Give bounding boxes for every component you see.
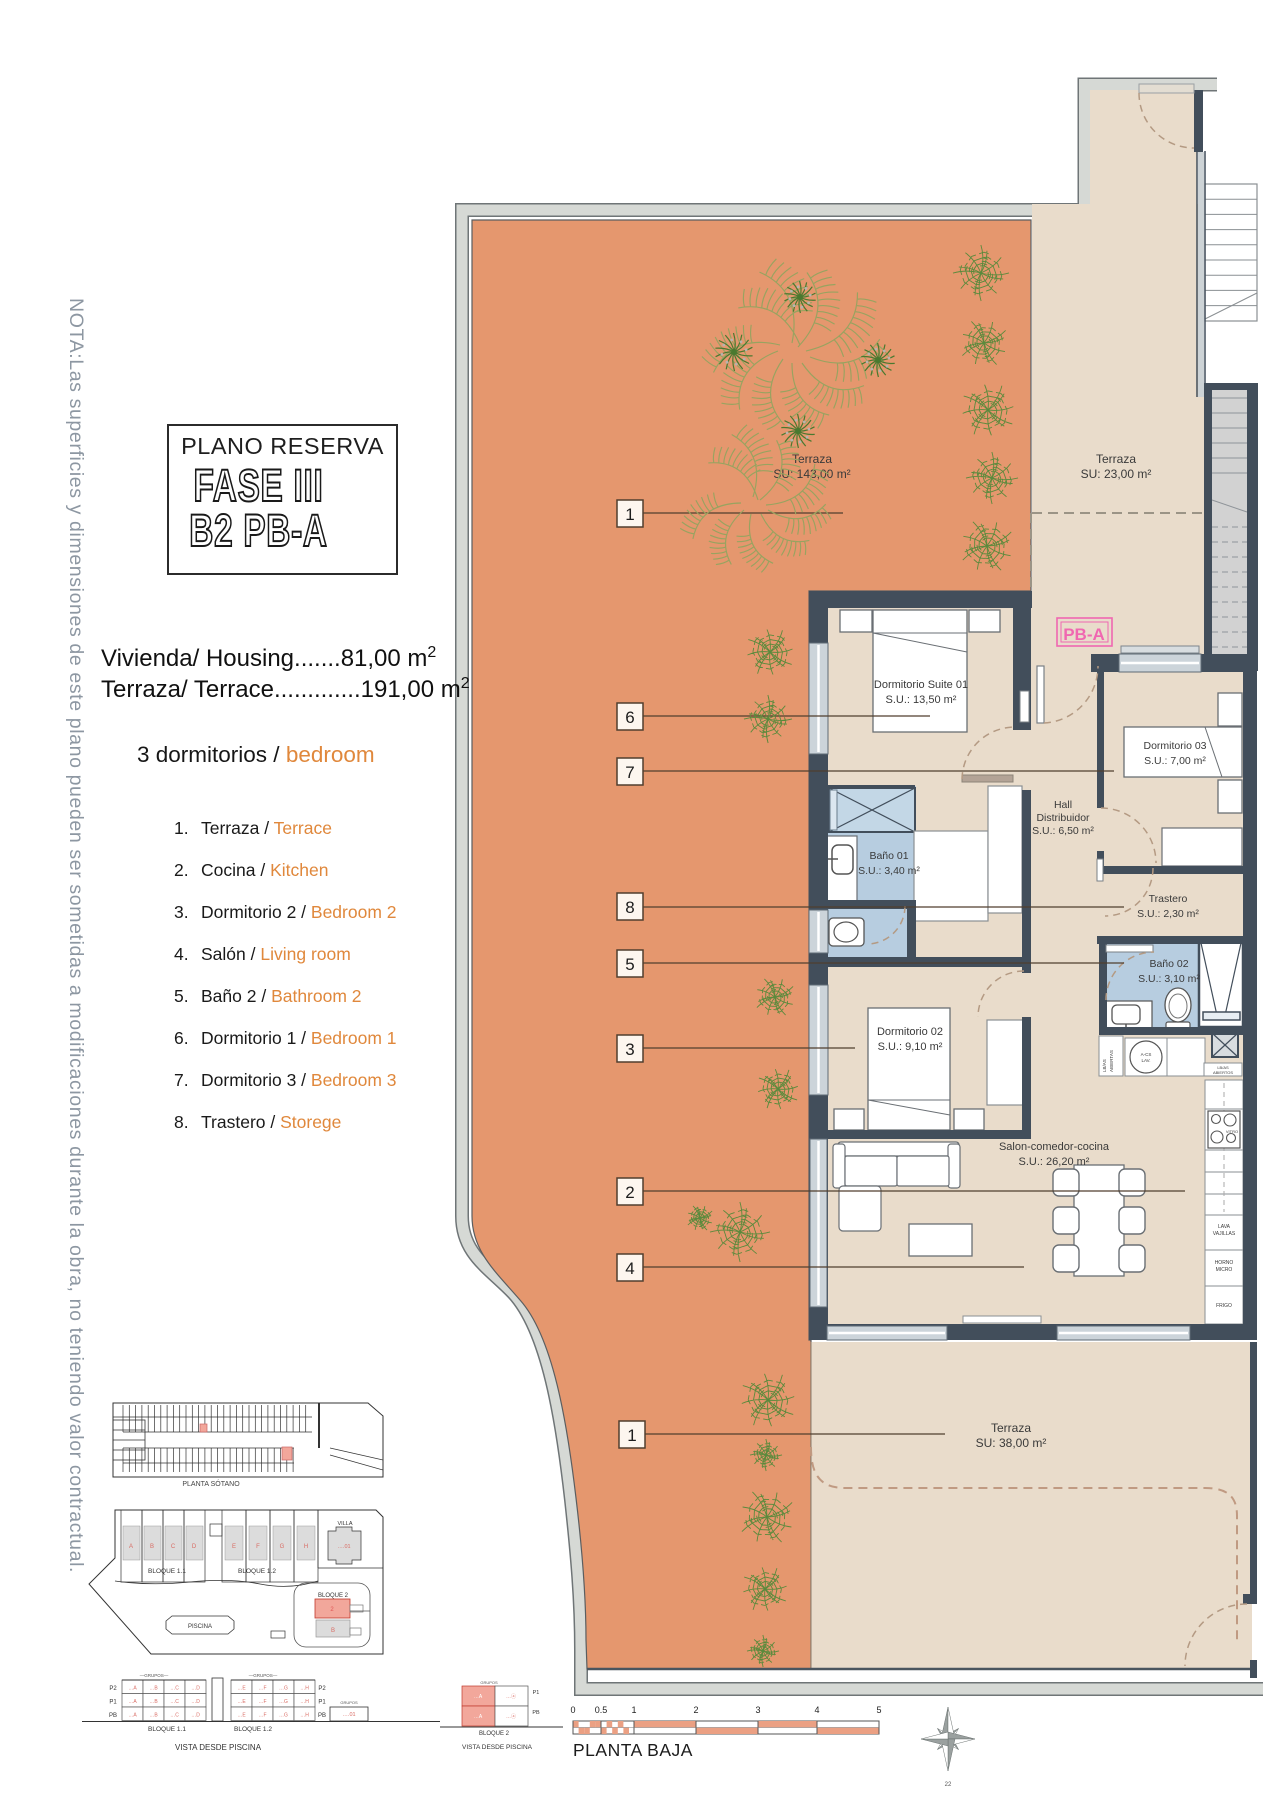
svg-text:…C: …C [170, 1713, 179, 1719]
svg-text:A-CS: A-CS [1141, 1052, 1152, 1057]
svg-text:…D: …D [191, 1699, 200, 1705]
svg-text:LB/AS: LB/AS [1102, 1059, 1107, 1072]
svg-text:….01: ….01 [342, 1712, 355, 1718]
svg-text:5: 5 [625, 955, 634, 974]
svg-text:…A: …A [128, 1713, 137, 1719]
svg-text:BLOQUE 1.2: BLOQUE 1.2 [238, 1568, 276, 1575]
svg-text:S.U.: 6,50 m²: S.U.: 6,50 m² [1032, 825, 1094, 837]
svg-text:0.5: 0.5 [595, 1705, 608, 1715]
svg-text:P1: P1 [533, 1690, 540, 1696]
svg-text:…B: …B [149, 1686, 158, 1692]
svg-text:F: F [256, 1544, 260, 1550]
svg-text:…E: …E [237, 1699, 246, 1705]
svg-text:Trastero: Trastero [1149, 893, 1188, 905]
svg-text:PB: PB [109, 1713, 117, 1719]
svg-text:S.U.: 13,50 m²: S.U.: 13,50 m² [886, 694, 957, 706]
svg-text:3: 3 [625, 1040, 634, 1059]
svg-text:…B: …B [149, 1713, 158, 1719]
svg-text:2: 2 [625, 1183, 634, 1202]
svg-text:G: G [280, 1544, 285, 1550]
svg-text:Dormitorio 03: Dormitorio 03 [1143, 740, 1206, 752]
svg-text:—GRUPOS—: —GRUPOS— [140, 1673, 169, 1678]
svg-text:…A: …A [474, 1714, 483, 1720]
svg-text:PLANTA BAJA: PLANTA BAJA [573, 1740, 693, 1760]
svg-text:S.U.: 3,40 m²: S.U.: 3,40 m² [858, 865, 920, 877]
svg-text:6: 6 [625, 708, 634, 727]
svg-text:0: 0 [570, 1705, 575, 1715]
svg-text:VILLA: VILLA [338, 1521, 353, 1527]
svg-text:Baño 01: Baño 01 [869, 850, 908, 862]
svg-text:S.U.: 26,20 m²: S.U.: 26,20 m² [1019, 1156, 1090, 1168]
svg-text:…G: …G [279, 1699, 288, 1705]
svg-text:22: 22 [945, 1782, 952, 1788]
svg-text:H: H [304, 1544, 308, 1550]
svg-text:MICRO: MICRO [1216, 1267, 1233, 1273]
svg-text:…F: …F [258, 1686, 266, 1692]
svg-text:…A: …A [128, 1699, 137, 1705]
svg-text:S.U.: 2,30 m²: S.U.: 2,30 m² [1137, 908, 1199, 920]
svg-text:ABIERTAS: ABIERTAS [1109, 1050, 1114, 1072]
svg-text:PLANTA SÓTANO: PLANTA SÓTANO [182, 1479, 240, 1488]
svg-text:SU: 23,00 m²: SU: 23,00 m² [1081, 467, 1152, 481]
svg-text:C: C [171, 1544, 176, 1550]
svg-text:FRIGO: FRIGO [1216, 1303, 1232, 1309]
svg-text:ABIERTOS: ABIERTOS [1213, 1070, 1233, 1075]
svg-text:2: 2 [693, 1705, 698, 1715]
svg-text:…C: …C [170, 1699, 179, 1705]
svg-text:Baño 02: Baño 02 [1149, 958, 1188, 970]
svg-text:PB-A: PB-A [1063, 625, 1105, 644]
svg-text:B: B [331, 1628, 335, 1634]
svg-text:S.U.: 7,00 m²: S.U.: 7,00 m² [1144, 755, 1206, 767]
svg-text:P2: P2 [318, 1686, 326, 1692]
svg-text:Dormitorio 02: Dormitorio 02 [877, 1026, 943, 1038]
svg-text:Salon-comedor-cocina: Salon-comedor-cocina [999, 1141, 1110, 1153]
svg-text:4: 4 [814, 1705, 819, 1715]
svg-text:….01: ….01 [337, 1544, 350, 1550]
svg-text:LAV.: LAV. [1141, 1058, 1150, 1063]
svg-text:B: B [150, 1544, 154, 1550]
svg-text:LAVA: LAVA [1218, 1224, 1231, 1230]
svg-text:VITRO: VITRO [1226, 1129, 1238, 1134]
svg-text:…ⓐ: …ⓐ [506, 1693, 516, 1700]
svg-text:…G: …G [279, 1686, 288, 1692]
svg-text:1: 1 [631, 1705, 636, 1715]
svg-text:—GRUPOS—: —GRUPOS— [249, 1673, 278, 1678]
svg-text:…H: …H [300, 1686, 309, 1692]
svg-text:S.U.: 3,10 m²: S.U.: 3,10 m² [1138, 973, 1200, 985]
svg-text:P1: P1 [109, 1700, 117, 1706]
svg-text:Terraza: Terraza [792, 452, 832, 466]
svg-text:…H: …H [300, 1699, 309, 1705]
svg-text:Dormitorio Suite 01: Dormitorio Suite 01 [874, 679, 968, 691]
svg-text:E: E [232, 1544, 236, 1550]
svg-text:…ⓐ: …ⓐ [506, 1713, 516, 1720]
svg-text:…A: …A [474, 1694, 483, 1700]
svg-text:PB: PB [318, 1713, 326, 1719]
svg-text:8: 8 [625, 898, 634, 917]
svg-text:BLOQUE 2: BLOQUE 2 [479, 1731, 510, 1737]
svg-text:P1: P1 [318, 1700, 326, 1706]
svg-text:…F: …F [258, 1699, 266, 1705]
svg-text:S.U.: 9,10 m²: S.U.: 9,10 m² [878, 1041, 943, 1053]
svg-text:…F: …F [258, 1713, 266, 1719]
svg-text:PB: PB [532, 1710, 540, 1716]
svg-text:GRUPOS: GRUPOS [480, 1680, 498, 1685]
svg-text:P2: P2 [109, 1686, 117, 1692]
svg-text:3: 3 [755, 1705, 760, 1715]
svg-text:SU: 38,00 m²: SU: 38,00 m² [976, 1436, 1047, 1450]
svg-text:BLOQUE 1.1: BLOQUE 1.1 [148, 1726, 186, 1733]
svg-text:…D: …D [191, 1713, 200, 1719]
svg-text:…H: …H [300, 1713, 309, 1719]
svg-text:…B: …B [149, 1699, 158, 1705]
svg-text:BLOQUE 2: BLOQUE 2 [318, 1593, 349, 1599]
svg-text:…D: …D [191, 1686, 200, 1692]
svg-text:1: 1 [625, 505, 634, 524]
svg-text:1: 1 [627, 1426, 636, 1445]
svg-text:4: 4 [625, 1259, 634, 1278]
svg-text:GRUPOS: GRUPOS [340, 1700, 358, 1705]
svg-text:VISTA DESDE PISCINA: VISTA DESDE PISCINA [175, 1743, 262, 1752]
svg-text:BLOQUE 1.1: BLOQUE 1.1 [148, 1568, 186, 1575]
svg-text:5: 5 [876, 1705, 881, 1715]
svg-text:Hall: Hall [1054, 799, 1072, 811]
svg-text:VAJILLAS: VAJILLAS [1213, 1231, 1236, 1237]
svg-text:…C: …C [170, 1686, 179, 1692]
svg-text:A: A [129, 1544, 133, 1550]
svg-text:…A: …A [128, 1686, 137, 1692]
svg-text:Terraza: Terraza [991, 1421, 1031, 1435]
svg-text:7: 7 [625, 763, 634, 782]
svg-text:BLOQUE 1.2: BLOQUE 1.2 [234, 1726, 272, 1733]
svg-text:Distribuidor: Distribuidor [1036, 812, 1090, 824]
svg-text:D: D [192, 1544, 197, 1550]
svg-text:…E: …E [237, 1713, 246, 1719]
svg-text:VISTA DESDE PISCINA: VISTA DESDE PISCINA [462, 1744, 533, 1751]
svg-text:PISCINA: PISCINA [188, 1624, 212, 1630]
svg-text:HORNO: HORNO [1215, 1260, 1234, 1266]
svg-text:Terraza: Terraza [1096, 452, 1136, 466]
svg-text:…E: …E [237, 1686, 246, 1692]
svg-text:…G: …G [279, 1713, 288, 1719]
